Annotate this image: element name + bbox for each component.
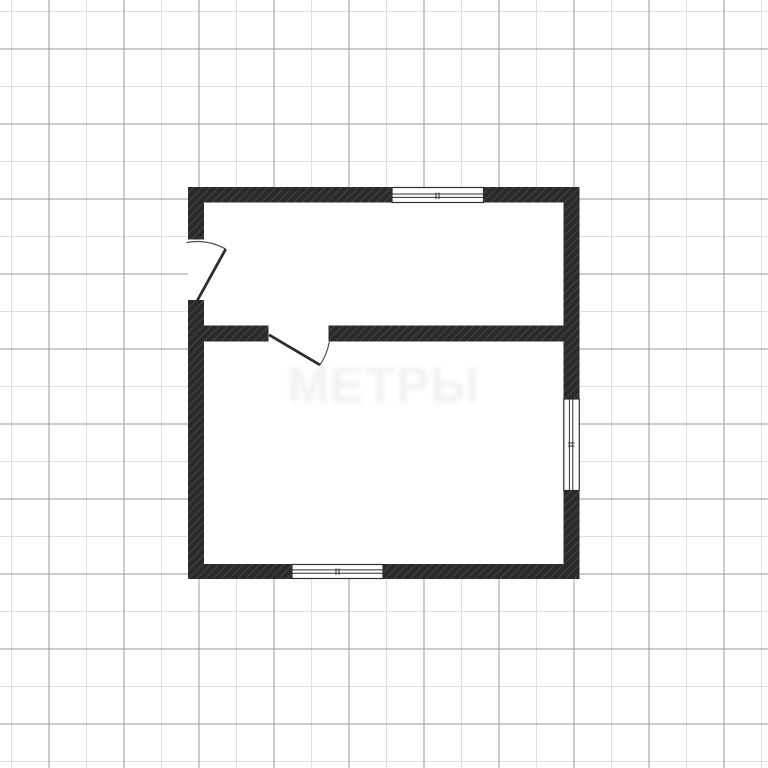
svg-text:МЕТРЫ: МЕТРЫ [288, 357, 481, 413]
